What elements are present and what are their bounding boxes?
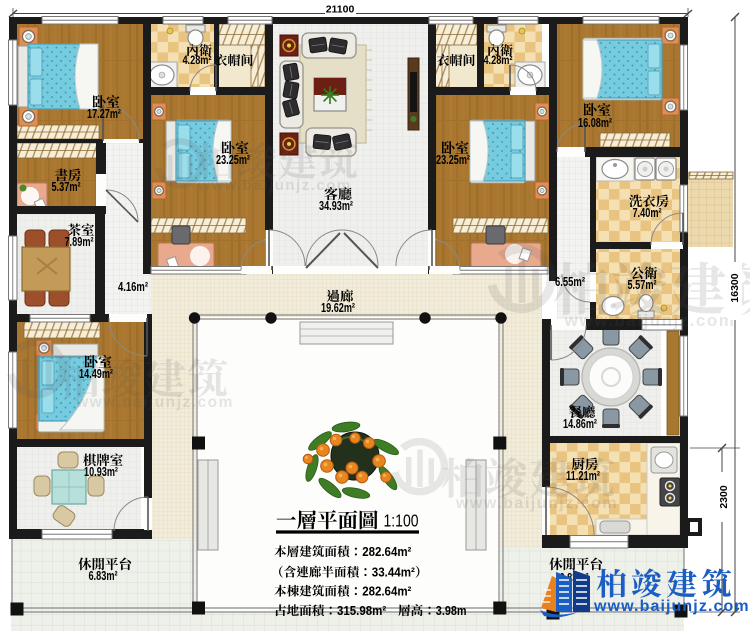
svg-text:11.21m²: 11.21m² (566, 469, 600, 483)
svg-text:315.98m²: 315.98m² (337, 603, 387, 618)
svg-text:282.64m²: 282.64m² (362, 544, 412, 559)
svg-text:19.62m²: 19.62m² (321, 301, 355, 315)
svg-text:www.baijunjz.com: www.baijunjz.com (75, 394, 234, 411)
svg-text:www.baijunjz.com: www.baijunjz.com (593, 598, 750, 615)
svg-text:6.83m²: 6.83m² (88, 569, 117, 583)
svg-text:7.40m²: 7.40m² (632, 206, 661, 220)
svg-text:282.64m²: 282.64m² (362, 584, 412, 599)
svg-text:23.25m²: 23.25m² (216, 152, 250, 167)
svg-text:10.93m²: 10.93m² (84, 465, 118, 479)
svg-text:14.86m²: 14.86m² (563, 417, 597, 431)
svg-text:1:100: 1:100 (384, 511, 419, 531)
svg-text:7.89m²: 7.89m² (64, 235, 93, 249)
svg-text:17.27m²: 17.27m² (87, 106, 121, 121)
svg-text:2300: 2300 (718, 485, 730, 509)
svg-text:23.25m²: 23.25m² (436, 152, 470, 167)
svg-text:33.44m²: 33.44m² (372, 565, 416, 580)
svg-text:16300: 16300 (729, 273, 741, 302)
svg-text:5.37m²: 5.37m² (51, 180, 80, 194)
svg-text:34.93m²: 34.93m² (319, 198, 353, 213)
svg-text:www.baijunjz.com: www.baijunjz.com (455, 495, 618, 512)
svg-text:4.16m²: 4.16m² (118, 280, 148, 294)
svg-text:4.28m²: 4.28m² (182, 53, 211, 67)
svg-text:4.28m²: 4.28m² (483, 53, 512, 67)
svg-text:16.08m²: 16.08m² (578, 115, 612, 130)
svg-text:5.57m²: 5.57m² (627, 278, 656, 292)
svg-text:www.baijunjz.com: www.baijunjz.com (564, 311, 736, 330)
svg-text:14.49m²: 14.49m² (79, 367, 113, 381)
svg-text:6.55m²: 6.55m² (555, 275, 585, 289)
svg-text:21100: 21100 (326, 4, 355, 16)
svg-text:3.98m: 3.98m (436, 603, 467, 618)
